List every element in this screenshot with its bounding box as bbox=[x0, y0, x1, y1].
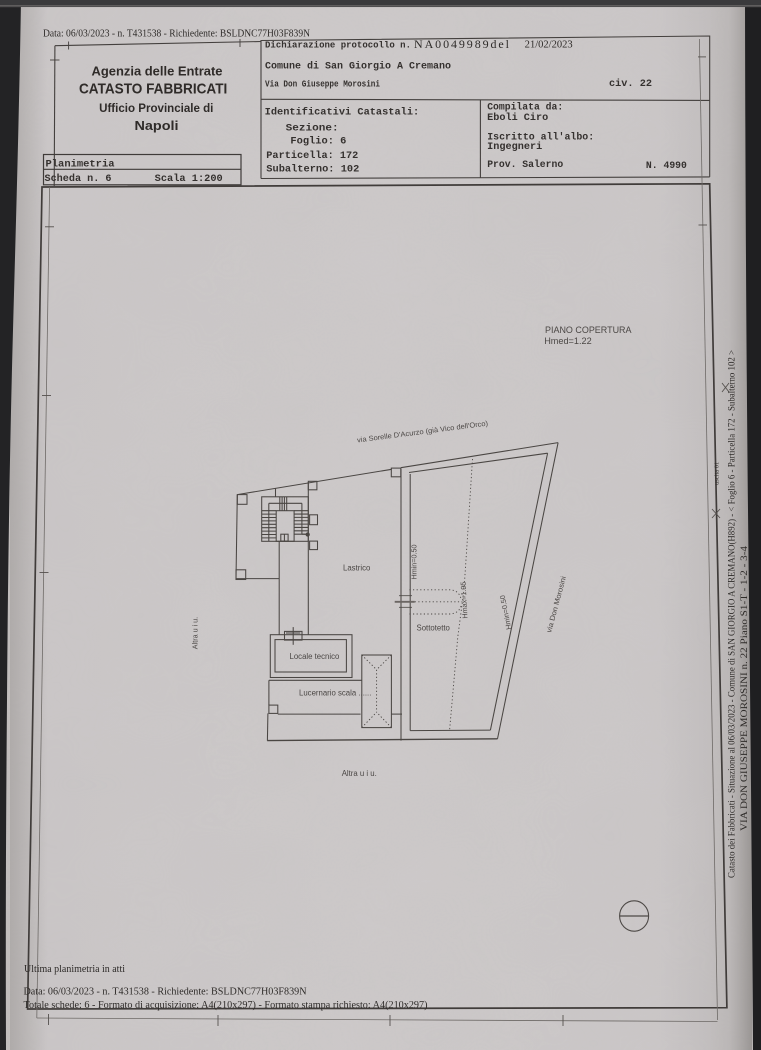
svg-text:Identificativi Catastali:: Identificativi Catastali: bbox=[265, 107, 420, 119]
svg-text:Agenzia delle Entrate: Agenzia delle Entrate bbox=[92, 64, 223, 79]
svg-text:Eboli Ciro: Eboli Ciro bbox=[487, 112, 548, 124]
svg-text:Locale tecnico: Locale tecnico bbox=[290, 652, 341, 661]
svg-text:Totale schede: 6 - Formato di: Totale schede: 6 - Formato di acquisizio… bbox=[24, 1000, 428, 1011]
svg-text:PIANO COPERTURA: PIANO COPERTURA bbox=[545, 325, 632, 336]
svg-text:CATASTO FABBRICATI: CATASTO FABBRICATI bbox=[79, 81, 227, 98]
svg-text:Hmed=1.22: Hmed=1.22 bbox=[544, 336, 592, 346]
svg-text:NA0049989del: NA0049989del bbox=[414, 37, 510, 51]
svg-text:Catasto dei Fabbricati - Situa: Catasto dei Fabbricati - Situazione al 0… bbox=[727, 350, 738, 878]
svg-text:N. 4990: N. 4990 bbox=[646, 161, 687, 172]
svg-text:Prov. Salerno: Prov. Salerno bbox=[487, 159, 563, 171]
svg-text:Ingegneri: Ingegneri bbox=[487, 141, 542, 153]
svg-text:Lucernario scala ......: Lucernario scala ...... bbox=[299, 689, 371, 698]
svg-text:Sezione:: Sezione: bbox=[286, 123, 339, 135]
svg-text:21/02/2023: 21/02/2023 bbox=[525, 40, 573, 51]
svg-text:Via Don Giuseppe Morosini: Via Don Giuseppe Morosini bbox=[265, 78, 380, 89]
svg-text:Subalterno: 102: Subalterno: 102 bbox=[266, 164, 359, 176]
svg-text:civ. 22: civ. 22 bbox=[609, 78, 652, 90]
svg-text:Data: 06/03/2023 - n. T431538: Data: 06/03/2023 - n. T431538 - Richiede… bbox=[24, 987, 307, 998]
svg-text:Ultima planimetria in atti: Ultima planimetria in atti bbox=[24, 964, 125, 975]
svg-text:Foglio: 6: Foglio: 6 bbox=[290, 136, 346, 148]
svg-text:Dichiarazione protocollo n.: Dichiarazione protocollo n. bbox=[265, 40, 411, 51]
svg-text:Data: 06/03/2023 - n. T431538: Data: 06/03/2023 - n. T431538 - Richiede… bbox=[43, 29, 310, 40]
svg-text:Hmin=0.50: Hmin=0.50 bbox=[410, 545, 419, 580]
svg-text:Ufficio Provinciale di: Ufficio Provinciale di bbox=[99, 101, 213, 115]
svg-text:Lastrico: Lastrico bbox=[343, 564, 371, 573]
svg-text:Altra u i u.: Altra u i u. bbox=[342, 769, 377, 778]
svg-text:Sottotetto: Sottotetto bbox=[417, 624, 451, 633]
svg-text:Compilata da:: Compilata da: bbox=[487, 102, 563, 114]
svg-text:Comune di San Giorgio A Creman: Comune di San Giorgio A Cremano bbox=[265, 60, 451, 72]
svg-text:Scheda n. 6: Scheda n. 6 bbox=[45, 173, 112, 185]
svg-text:uscita 01: uscita 01 bbox=[714, 462, 721, 485]
svg-text:Planimetria: Planimetria bbox=[46, 159, 115, 171]
svg-text:Napoli: Napoli bbox=[135, 118, 179, 133]
svg-text:VIA DON GIUSEPPE MOROSINI n. 2: VIA DON GIUSEPPE MOROSINI n. 22 Piano S1… bbox=[740, 546, 750, 831]
svg-text:Altra u i u.: Altra u i u. bbox=[191, 617, 200, 649]
svg-text:Particella: 172: Particella: 172 bbox=[266, 150, 358, 162]
svg-text:Scala 1:200: Scala 1:200 bbox=[155, 173, 223, 185]
